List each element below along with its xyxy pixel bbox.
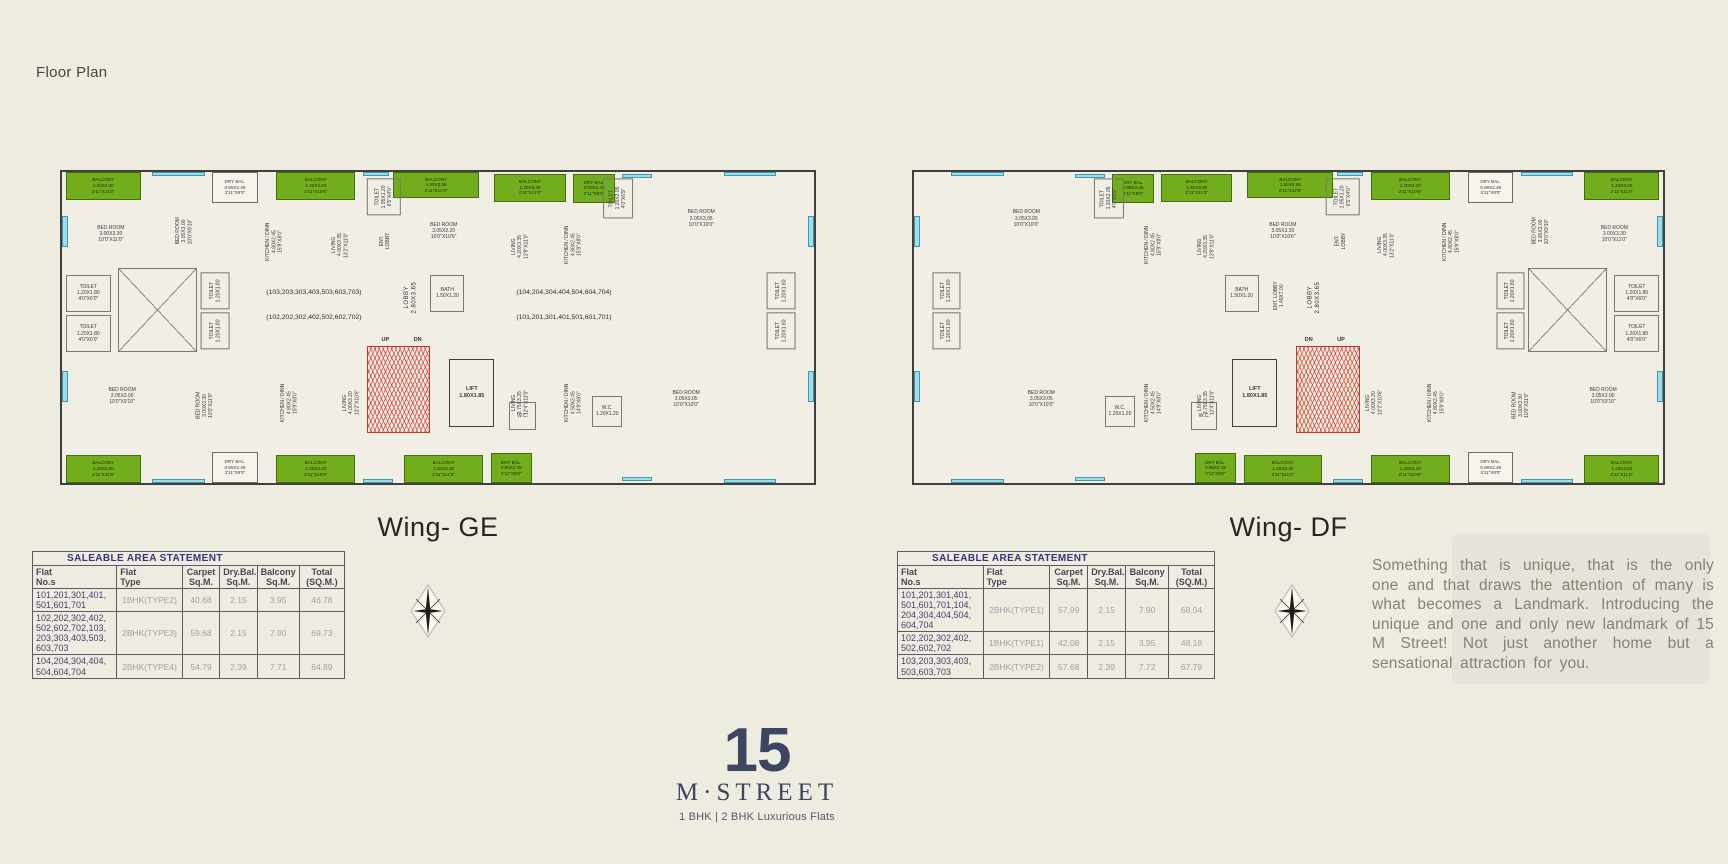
table-title: SALEABLE AREA STATEMENT — [33, 552, 345, 566]
toilet: TOILET 1.20X1.80 4'0"X6'0" — [1614, 275, 1659, 312]
value-cell: 2BHK(TYPE3) — [117, 612, 183, 655]
value-cell: 7.90 — [257, 612, 299, 655]
bed-room: BED ROOM 3.05X3.05 10'0"X10'0" — [981, 191, 1071, 247]
dry-balcony: DRY BAL. 0.90X2.45 2'11"X8'0" — [1468, 452, 1513, 483]
wc: W.C. 1.20X1.20 — [592, 396, 622, 427]
living: LIVING 3.75X3.35 12'4"X11'0" — [1180, 359, 1232, 446]
value-cell: 2.15 — [220, 612, 257, 655]
bed-room: BED ROOM 3.05X3.00 10'0"X9'10" — [1566, 365, 1641, 427]
kitchen-dinn: KITCHEN / DINN 4.50X2.45 14'9"X8'0" — [1131, 359, 1176, 446]
wc: W.C. 1.20X1.20 — [1105, 396, 1135, 427]
marketing-blurb: Something that is unique, that is the on… — [1372, 556, 1714, 674]
value-cell: 46.78 — [299, 589, 344, 612]
floor-plan-wing-df: BALCONY 1.20X3.30 2'11"X11'0"DRY BAL. 0.… — [912, 170, 1665, 485]
value-cell: 3.95 — [257, 589, 299, 612]
kitchen-dinn: KITCHEN / DINN 4.80X2.45 15'9"X8'0" — [551, 203, 596, 287]
wing-ge-label: Wing- GE — [60, 512, 816, 543]
toilet: TOILET 1.20X1.80 — [932, 312, 960, 349]
table-row: 102,202,302,402, 502,602,702,103, 203,30… — [33, 612, 345, 655]
saleable-area-table-df: SALEABLE AREA STATEMENTFlat No.sFlat Typ… — [897, 551, 1215, 679]
area-statement-table: SALEABLE AREA STATEMENTFlat No.sFlat Typ… — [897, 551, 1215, 679]
bed-room: BED ROOM 3.00X3.30 10'0"X11'0" — [1577, 209, 1652, 259]
flat-numbers-cell: 101,201,301,401, 501,601,701 — [33, 589, 117, 612]
lobby: LOBBY 2.80X3.65 — [1301, 262, 1329, 334]
column-header: Flat No.s — [33, 566, 117, 589]
flat-group: (102,202,302,402,502,602,702) — [239, 312, 389, 324]
value-cell: 67.79 — [1169, 655, 1215, 678]
flat-numbers-cell: 101,201,301,401, 501,601,701,104, 204,30… — [898, 589, 984, 632]
living: LIVING 4.00X3.35 13'2"X11'0" — [314, 203, 367, 287]
window — [951, 479, 1003, 483]
value-cell: 57.99 — [1050, 589, 1088, 632]
window — [914, 371, 920, 402]
toilet: TOILET 1.20X1.80 — [767, 312, 796, 349]
toilet: TOILET 1.20X1.80 4'0"X6'0" — [66, 315, 111, 352]
window — [1657, 216, 1663, 247]
logo-name: M·STREET — [657, 779, 857, 807]
column-header: Balcony Sq.M. — [1126, 566, 1169, 589]
value-cell: 7.71 — [257, 655, 299, 678]
area-statement-table: SALEABLE AREA STATEMENTFlat No.sFlat Typ… — [32, 551, 345, 679]
balcony: BALCONY 1.20X3.30 2'11"X11'0" — [1244, 455, 1323, 483]
value-cell: 42.08 — [1050, 632, 1088, 655]
saleable-area-table-ge: SALEABLE AREA STATEMENTFlat No.sFlat Typ… — [32, 551, 345, 679]
window — [363, 172, 389, 176]
compass-icon — [1270, 582, 1314, 640]
value-cell: 3.95 — [1126, 632, 1169, 655]
flat-numbers-cell: 103,203,303,403, 503,603,703 — [898, 655, 984, 678]
toilet: TOILET 1.20X2.05 4'0"X6'9" — [603, 178, 633, 218]
flat-numbers-cell: 102,202,302,402, 502,602,702,103, 203,30… — [33, 612, 117, 655]
value-cell: 69.73 — [299, 612, 344, 655]
window — [62, 216, 68, 247]
dry-balcony: DRY BAL. 0.90X2.45 2'11"X8'0" — [212, 452, 257, 483]
bed-room: BED ROOM 3.05X3.05 10'0"X10'0" — [656, 191, 746, 247]
brand-logo: 15 M·STREET 1 BHK | 2 BHK Luxurious Flat… — [657, 720, 857, 823]
value-cell: 7.72 — [1126, 655, 1169, 678]
logo-tagline: 1 BHK | 2 BHK Luxurious Flats — [657, 811, 857, 823]
bed-room: BED ROOM 3.05X3.00 10'0"X9'10" — [85, 365, 160, 427]
duct-void — [118, 268, 197, 352]
bed-room: BED ROOM 3.05X3.00 10'0"X9'10" — [1513, 197, 1569, 265]
kitchen-dinn: KITCHEN / DINN 4.80X2.45 15'9"X8'0" — [1427, 200, 1476, 284]
page-title: Floor Plan — [36, 64, 107, 81]
window — [808, 371, 814, 402]
table-row: 102,202,302,402, 502,602,7021BHK(TYPE1)4… — [898, 632, 1215, 655]
column-header: Flat Type — [117, 566, 183, 589]
bath: BATH 1.50X1.20 — [1225, 275, 1259, 312]
window — [1657, 371, 1663, 402]
value-cell: 1BHK(TYPE2) — [117, 589, 183, 612]
table-row: 104,204,304,404, 504,604,7042BHK(TYPE4)5… — [33, 655, 345, 678]
window — [1075, 477, 1105, 481]
lift: LIFT 1.80X1.85 — [1232, 359, 1277, 427]
bed-room: BED ROOM 3.05X3.20 10'0"X10'6" — [404, 206, 483, 256]
value-cell: 2.15 — [1088, 632, 1126, 655]
dry-balcony: DRY BAL. 0.90X2.45 2'11"X8'0" — [491, 453, 532, 483]
column-header: Dry.Bal. Sq.M. — [1088, 566, 1126, 589]
dry-balcony: DRY BAL. 0.90X2.45 2'11"X8'0" — [212, 172, 257, 203]
column-header: Balcony Sq.M. — [257, 566, 299, 589]
balcony: BALCONY 1.20X3.30 2'11"X11'0" — [1584, 172, 1659, 200]
value-cell: 2.15 — [1088, 589, 1126, 632]
compass-icon — [406, 582, 450, 640]
window — [914, 216, 920, 247]
lift: LIFT 1.80X1.85 — [449, 359, 494, 427]
kitchen-dinn: KITCHEN / DINN 4.80X2.45 15'9"X8'0" — [250, 200, 299, 284]
value-cell: 2BHK(TYPE2) — [983, 655, 1050, 678]
window — [808, 216, 814, 247]
toilet: TOILET 1.20X1.80 — [201, 312, 230, 349]
flat-numbers-cell: 102,202,302,402, 502,602,702 — [898, 632, 984, 655]
bed-room: BED ROOM 3.00X3.30 10'0"X11'0" — [175, 365, 235, 446]
kitchen-dinn: KITCHEN / DINN 4.50X2.45 14'9"X8'0" — [551, 359, 596, 446]
kitchen-dinn: KITCHEN / DINN 4.80X2.45 15'9"X8'0" — [1131, 203, 1176, 287]
window — [152, 479, 205, 483]
balcony: BALCONY 1.20X3.30 2'11"X11'0" — [66, 172, 141, 200]
balcony: BALCONY 1.20X3.30 2'11"X11'0" — [494, 174, 565, 202]
toilet: TOILET 1.20X1.80 4'0"X6'0" — [66, 275, 111, 312]
table-title: SALEABLE AREA STATEMENT — [898, 552, 1215, 566]
value-cell: 2BHK(TYPE4) — [117, 655, 183, 678]
balcony: BALCONY 1.20X3.20 2'11"X10'6" — [276, 172, 355, 200]
window — [951, 172, 1003, 176]
window — [152, 172, 205, 176]
stair-up-label: UP — [374, 334, 397, 346]
value-cell: 2BHK(TYPE1) — [983, 589, 1050, 632]
column-header: Flat Type — [983, 566, 1050, 589]
bed-room: BED ROOM 3.00X3.30 10'0"X11'0" — [73, 209, 148, 259]
column-header: Total (SQ.M.) — [1169, 566, 1215, 589]
ent-lobby: ENT. LOBBY — [370, 222, 400, 259]
bed-room: BED ROOM 3.05X3.00 10'0"X9'10" — [156, 197, 212, 265]
window — [1337, 172, 1363, 176]
column-header: Carpet Sq.M. — [1050, 566, 1088, 589]
toilet: TOILET 1.95X1.20 6'5"X4'0" — [1326, 178, 1360, 215]
logo-number: 15 — [657, 720, 857, 782]
table-row: 103,203,303,403, 503,603,7032BHK(TYPE2)5… — [898, 655, 1215, 678]
value-cell: 59.68 — [182, 612, 219, 655]
living: LIVING 3.75X3.35 12'4"X11'0" — [494, 359, 547, 446]
window — [62, 371, 68, 402]
value-cell: 2.15 — [220, 589, 257, 612]
window — [622, 477, 652, 481]
balcony: BALCONY 1.20X3.30 2'11"X11'0" — [404, 455, 483, 483]
window — [1333, 479, 1363, 483]
flat-group: (104,204,304,404,504,604,704) — [487, 287, 641, 299]
window — [363, 479, 393, 483]
column-header: Total (SQ.M.) — [299, 566, 344, 589]
flat-group: (103,203,303,403,503,603,703) — [239, 287, 389, 299]
kitchen-dinn: KITCHEN / DINN 4.80X2.45 15'9"X8'0" — [1412, 359, 1461, 446]
value-cell: 64.89 — [299, 655, 344, 678]
window — [1521, 479, 1573, 483]
toilet: TOILET 1.20X1.80 — [1496, 272, 1524, 309]
column-header: Dry.Bal. Sq.M. — [220, 566, 257, 589]
ent-lobby: ENT. LOBBY — [1326, 222, 1356, 259]
value-cell: 57.68 — [1050, 655, 1088, 678]
value-cell: 2.39 — [220, 655, 257, 678]
column-header: Carpet Sq.M. — [182, 566, 219, 589]
table-row: 101,201,301,401, 501,601,7011BHK(TYPE2)4… — [33, 589, 345, 612]
balcony: BALCONY 1.20X3.30 2'11"X11'0" — [1161, 174, 1232, 202]
balcony: BALCONY 1.20X3.20 2'11"X10'6" — [276, 455, 355, 483]
balcony: BALCONY 1.20X3.50 2'11"X11'6" — [1584, 455, 1659, 483]
stair-dn-label: DN — [1297, 334, 1319, 346]
balcony: BALCONY 1.50X3.65 2'11"X12'0" — [393, 172, 479, 198]
duct-void — [1528, 268, 1607, 352]
toilet: TOILET 1.95X1.20 6'5"X4'0" — [367, 178, 401, 215]
column-header: Flat No.s — [898, 566, 984, 589]
living: LIVING 4.00X3.20 13'2"X10'6" — [325, 359, 378, 446]
value-cell: 2.39 — [1088, 655, 1126, 678]
living: LIVING 4.00X3.20 13'2"X10'6" — [1348, 359, 1400, 446]
flat-numbers-cell: 104,204,304,404, 504,604,704 — [33, 655, 117, 678]
flat-group: (101,201,301,401,501,601,701) — [487, 312, 641, 324]
bath: BATH 1.50X1.20 — [430, 275, 464, 312]
dry-balcony: DRY BAL. 0.90X2.45 2'11"X8'0" — [1468, 172, 1513, 203]
bed-room: BED ROOM 3.00X3.30 10'0"X11'0" — [1491, 365, 1551, 446]
lobby: LOBBY 2.80X3.65 — [397, 262, 426, 334]
kitchen-dinn: KITCHEN / DINN 4.80X2.45 15'9"X8'0" — [265, 359, 314, 446]
balcony: BALCONY 1.50X3.65 2'11"X12'0" — [1247, 172, 1333, 198]
bed-room: BED ROOM 3.05X3.05 10'0"X10'0" — [996, 371, 1086, 427]
stair-dn-label: DN — [406, 334, 429, 346]
toilet: TOILET 1.20X2.05 4'0"X6'9" — [1094, 178, 1124, 218]
toilet: TOILET 1.20X1.80 — [1496, 312, 1524, 349]
value-cell: 68.04 — [1169, 589, 1215, 632]
living: LIVING 4.00X3.35 13'2"X11'0" — [1360, 203, 1412, 287]
toilet: TOILET 1.20X1.80 — [932, 272, 960, 309]
value-cell: 48.18 — [1169, 632, 1215, 655]
floor-plan-wing-ge: BALCONY 1.20X3.30 2'11"X11'0"DRY BAL. 0.… — [60, 170, 816, 485]
bed-room: BED ROOM 3.05X3.05 10'0"X10'0" — [641, 371, 731, 427]
toilet: TOILET 1.20X1.80 4'0"X6'0" — [1614, 315, 1659, 352]
balcony: BALCONY 1.20X3.50 2'11"X11'6" — [66, 455, 141, 483]
table-row: 101,201,301,401, 501,601,701,104, 204,30… — [898, 589, 1215, 632]
value-cell: 54.79 — [182, 655, 219, 678]
toilet: TOILET 1.20X1.80 — [767, 272, 796, 309]
window — [1521, 172, 1573, 176]
balcony: BALCONY 1.20X3.20 2'11"X10'6" — [1371, 455, 1450, 483]
window — [724, 172, 777, 176]
balcony: BALCONY 1.20X3.20 2'11"X10'6" — [1371, 172, 1450, 200]
value-cell: 1BHK(TYPE1) — [983, 632, 1050, 655]
dry-balcony: DRY BAL. 0.90X2.45 2'11"X8'0" — [1195, 453, 1236, 483]
stair-up-label: UP — [1330, 334, 1352, 346]
window — [724, 479, 777, 483]
value-cell: 7.90 — [1126, 589, 1169, 632]
value-cell: 40.68 — [182, 589, 219, 612]
bed-room: BED ROOM 3.05X3.20 10'0"X10'6" — [1244, 206, 1323, 256]
ent-lobby: ENT. LOBBY 1.45X7.00 — [1266, 265, 1292, 327]
toilet: TOILET 1.20X1.80 — [201, 272, 230, 309]
living: LIVING 4.20X3.35 13'9"X11'0" — [494, 206, 547, 287]
